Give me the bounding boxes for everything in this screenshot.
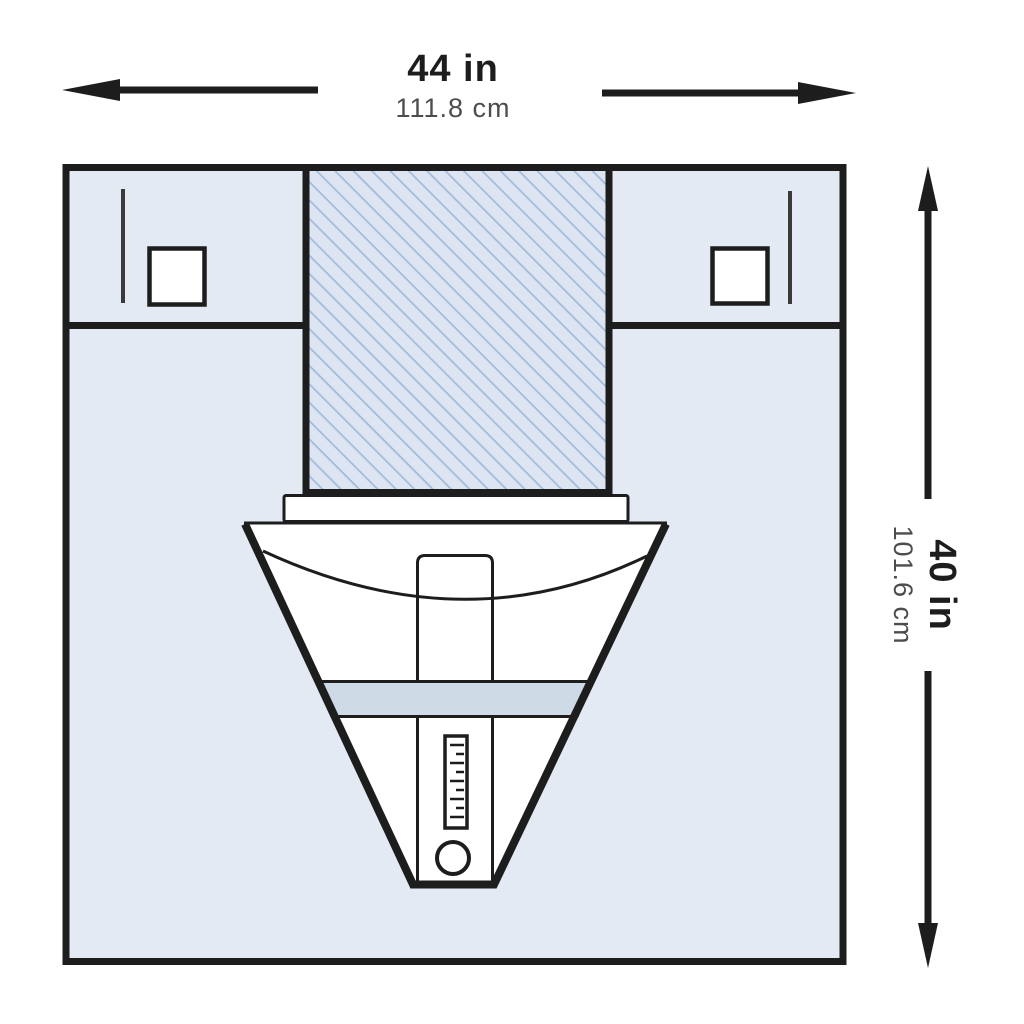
height-imperial-value: 40 in bbox=[921, 539, 961, 631]
reinforcement-band bbox=[317, 682, 593, 717]
width-imperial-value: 44 in bbox=[407, 50, 499, 90]
arrow-left-icon bbox=[62, 79, 120, 101]
width-dimension-label: 44 in 111.8 cm bbox=[395, 50, 510, 122]
arrow-up-icon bbox=[918, 166, 938, 211]
drape-diagram: 44 in 111.8 cm 40 in 101.6 cm bbox=[0, 0, 1024, 1024]
fenestration-area bbox=[306, 168, 609, 493]
drain-port-circle bbox=[437, 842, 469, 874]
arrow-right-icon bbox=[798, 82, 856, 104]
tape-square-right bbox=[713, 249, 768, 304]
width-metric-value: 111.8 cm bbox=[395, 94, 510, 122]
pouch-attachment-strip bbox=[284, 496, 628, 522]
graduated-ruler bbox=[445, 736, 467, 828]
tape-square-left bbox=[150, 249, 205, 305]
arrow-down-icon bbox=[918, 923, 938, 968]
height-metric-value: 101.6 cm bbox=[889, 525, 917, 644]
height-dimension-label: 40 in 101.6 cm bbox=[889, 525, 961, 644]
drape-illustration bbox=[0, 0, 1024, 1024]
